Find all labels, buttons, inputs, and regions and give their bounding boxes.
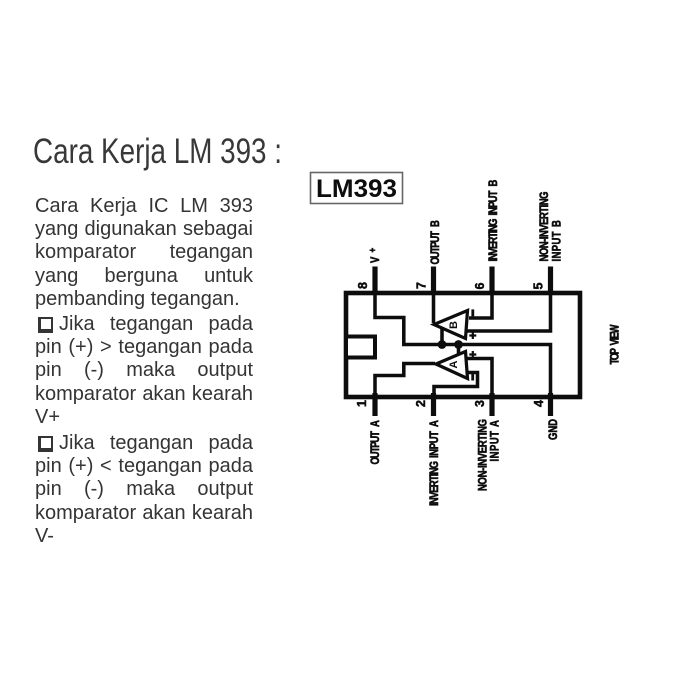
svg-text:VIEW: VIEW <box>608 324 621 346</box>
svg-text:1: 1 <box>355 400 369 407</box>
svg-text:INVERTING: INVERTING <box>487 219 500 262</box>
svg-text:A: A <box>428 420 441 427</box>
svg-text:A: A <box>448 360 460 368</box>
svg-text:3: 3 <box>473 400 487 407</box>
svg-text:2: 2 <box>414 400 428 407</box>
svg-text:LM393: LM393 <box>316 175 397 203</box>
svg-text:OUTPUT: OUTPUT <box>429 231 442 265</box>
svg-text:6: 6 <box>473 282 487 289</box>
svg-text:B: B <box>550 220 563 227</box>
svg-text:4: 4 <box>532 400 546 407</box>
svg-text:OUTPUT: OUTPUT <box>369 431 382 465</box>
svg-text:B: B <box>429 220 442 227</box>
svg-text:A: A <box>488 420 501 427</box>
svg-text:+: + <box>367 248 378 253</box>
svg-text:INPUT: INPUT <box>550 231 563 261</box>
svg-text:GND: GND <box>547 419 560 440</box>
svg-text:7: 7 <box>415 282 429 289</box>
svg-text:INPUT: INPUT <box>487 190 500 215</box>
svg-text:B: B <box>448 321 460 329</box>
svg-text:B: B <box>487 179 500 186</box>
svg-text:8: 8 <box>356 282 370 289</box>
svg-text:INVERTING: INVERTING <box>428 461 441 506</box>
svg-text:V: V <box>369 256 382 263</box>
svg-text:INPUT: INPUT <box>488 431 501 462</box>
svg-text:TOP: TOP <box>608 348 621 365</box>
svg-text:INPUT: INPUT <box>428 431 441 458</box>
svg-text:5: 5 <box>532 282 546 289</box>
svg-text:NON-INVERTING: NON-INVERTING <box>538 192 551 262</box>
svg-text:A: A <box>369 420 382 427</box>
